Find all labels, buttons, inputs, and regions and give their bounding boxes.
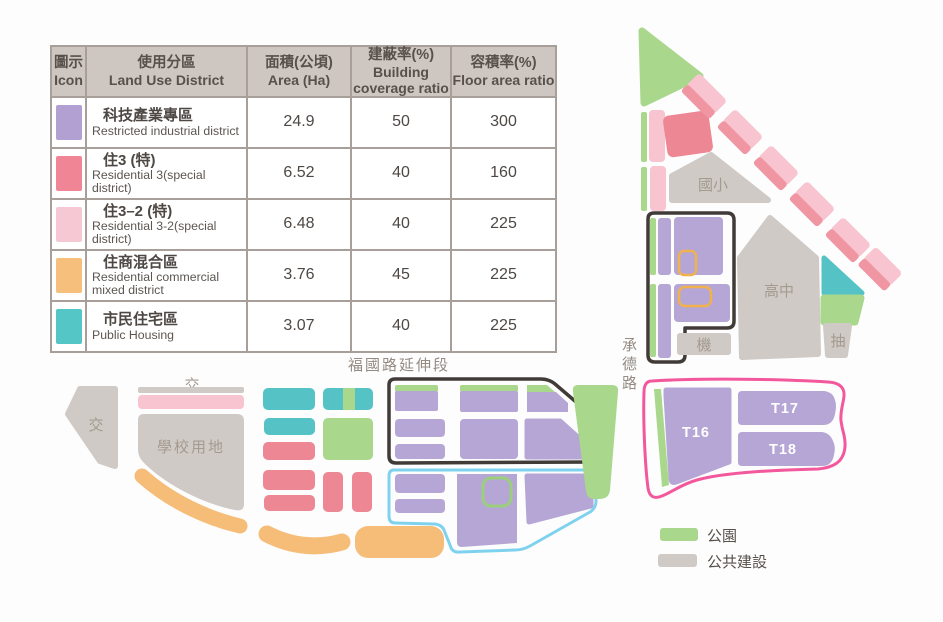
pump-label: 抽 <box>830 333 845 350</box>
park-block <box>323 418 373 460</box>
machine-label: 機 <box>696 337 711 354</box>
industrial-block <box>674 217 723 275</box>
residential-strip-block <box>825 217 872 264</box>
map-lower-left: 交 交 學校用地 福國路延伸段 <box>68 357 618 558</box>
school-land-block <box>138 414 244 510</box>
residential3-block <box>662 110 713 158</box>
block-grid <box>263 388 444 558</box>
industrial-block <box>527 392 568 412</box>
map-upper-right: 國小 機 高中 抽 <box>641 31 903 362</box>
residential3-block <box>263 442 315 460</box>
high-school-label: 高中 <box>764 283 794 300</box>
map-legend: 公園 公共建設 <box>658 528 767 571</box>
park-cap <box>395 385 438 392</box>
residential-strip <box>650 166 666 211</box>
t17-label: T17 <box>771 401 799 417</box>
park-cap <box>527 385 555 392</box>
residential3-block <box>352 472 372 512</box>
public-housing-block <box>263 388 315 410</box>
park-strip <box>650 218 656 275</box>
residential-strip-block <box>717 109 764 156</box>
industrial-block <box>395 419 445 437</box>
park-strip <box>641 112 647 162</box>
park-strip <box>641 167 647 211</box>
interchange-left-label: 交 <box>88 416 103 434</box>
industrial-strip <box>658 284 671 358</box>
residential3-block <box>323 472 343 512</box>
residential-strip <box>138 395 244 409</box>
residential-strip-block <box>789 181 836 228</box>
mixed-use-band <box>267 534 342 546</box>
chengde-road-label: 承德路 <box>618 337 639 394</box>
industrial-block <box>457 474 517 547</box>
legend-public-label: 公共建設 <box>707 554 767 571</box>
public-housing-triangle <box>824 258 862 293</box>
park-block <box>824 298 861 322</box>
industrial-block <box>674 284 730 322</box>
residential-strip-block <box>857 246 902 291</box>
residential3-block <box>264 495 315 511</box>
mixed-use-band <box>355 526 444 558</box>
industrial-block <box>527 476 591 522</box>
industrial-block <box>395 391 438 411</box>
elementary-school-label: 國小 <box>698 177 728 194</box>
land-use-plan-figure: 圖示Icon 使用分區Land Use District 面積(公頃)Area … <box>0 0 943 622</box>
t-zone: T16 T17 T18 <box>644 379 845 497</box>
legend-park-swatch <box>660 528 698 541</box>
fuguo-road-label: 福國路延伸段 <box>348 357 450 374</box>
residential-strip-block <box>753 145 800 192</box>
legend-public-swatch <box>658 554 697 567</box>
industrial-strip <box>658 218 671 275</box>
park-strip <box>650 284 656 357</box>
legend-park-label: 公園 <box>707 528 737 545</box>
t16-label: T16 <box>682 425 710 441</box>
industrial-block <box>395 444 445 459</box>
land-use-map: 國小 機 高中 抽 交 <box>0 0 943 622</box>
public-housing-block <box>264 418 315 435</box>
park-strip <box>343 388 355 410</box>
tech-zone-south <box>389 379 602 463</box>
t18-label: T18 <box>769 442 797 458</box>
road-strip <box>138 387 244 393</box>
industrial-block <box>460 391 518 412</box>
residential3-block <box>263 470 315 490</box>
school-land-label: 學校用地 <box>157 438 225 456</box>
industrial-block <box>395 499 445 513</box>
industrial-block <box>395 474 445 493</box>
park-cap <box>460 385 518 392</box>
industrial-block <box>460 419 518 459</box>
residential-strip <box>649 110 665 162</box>
